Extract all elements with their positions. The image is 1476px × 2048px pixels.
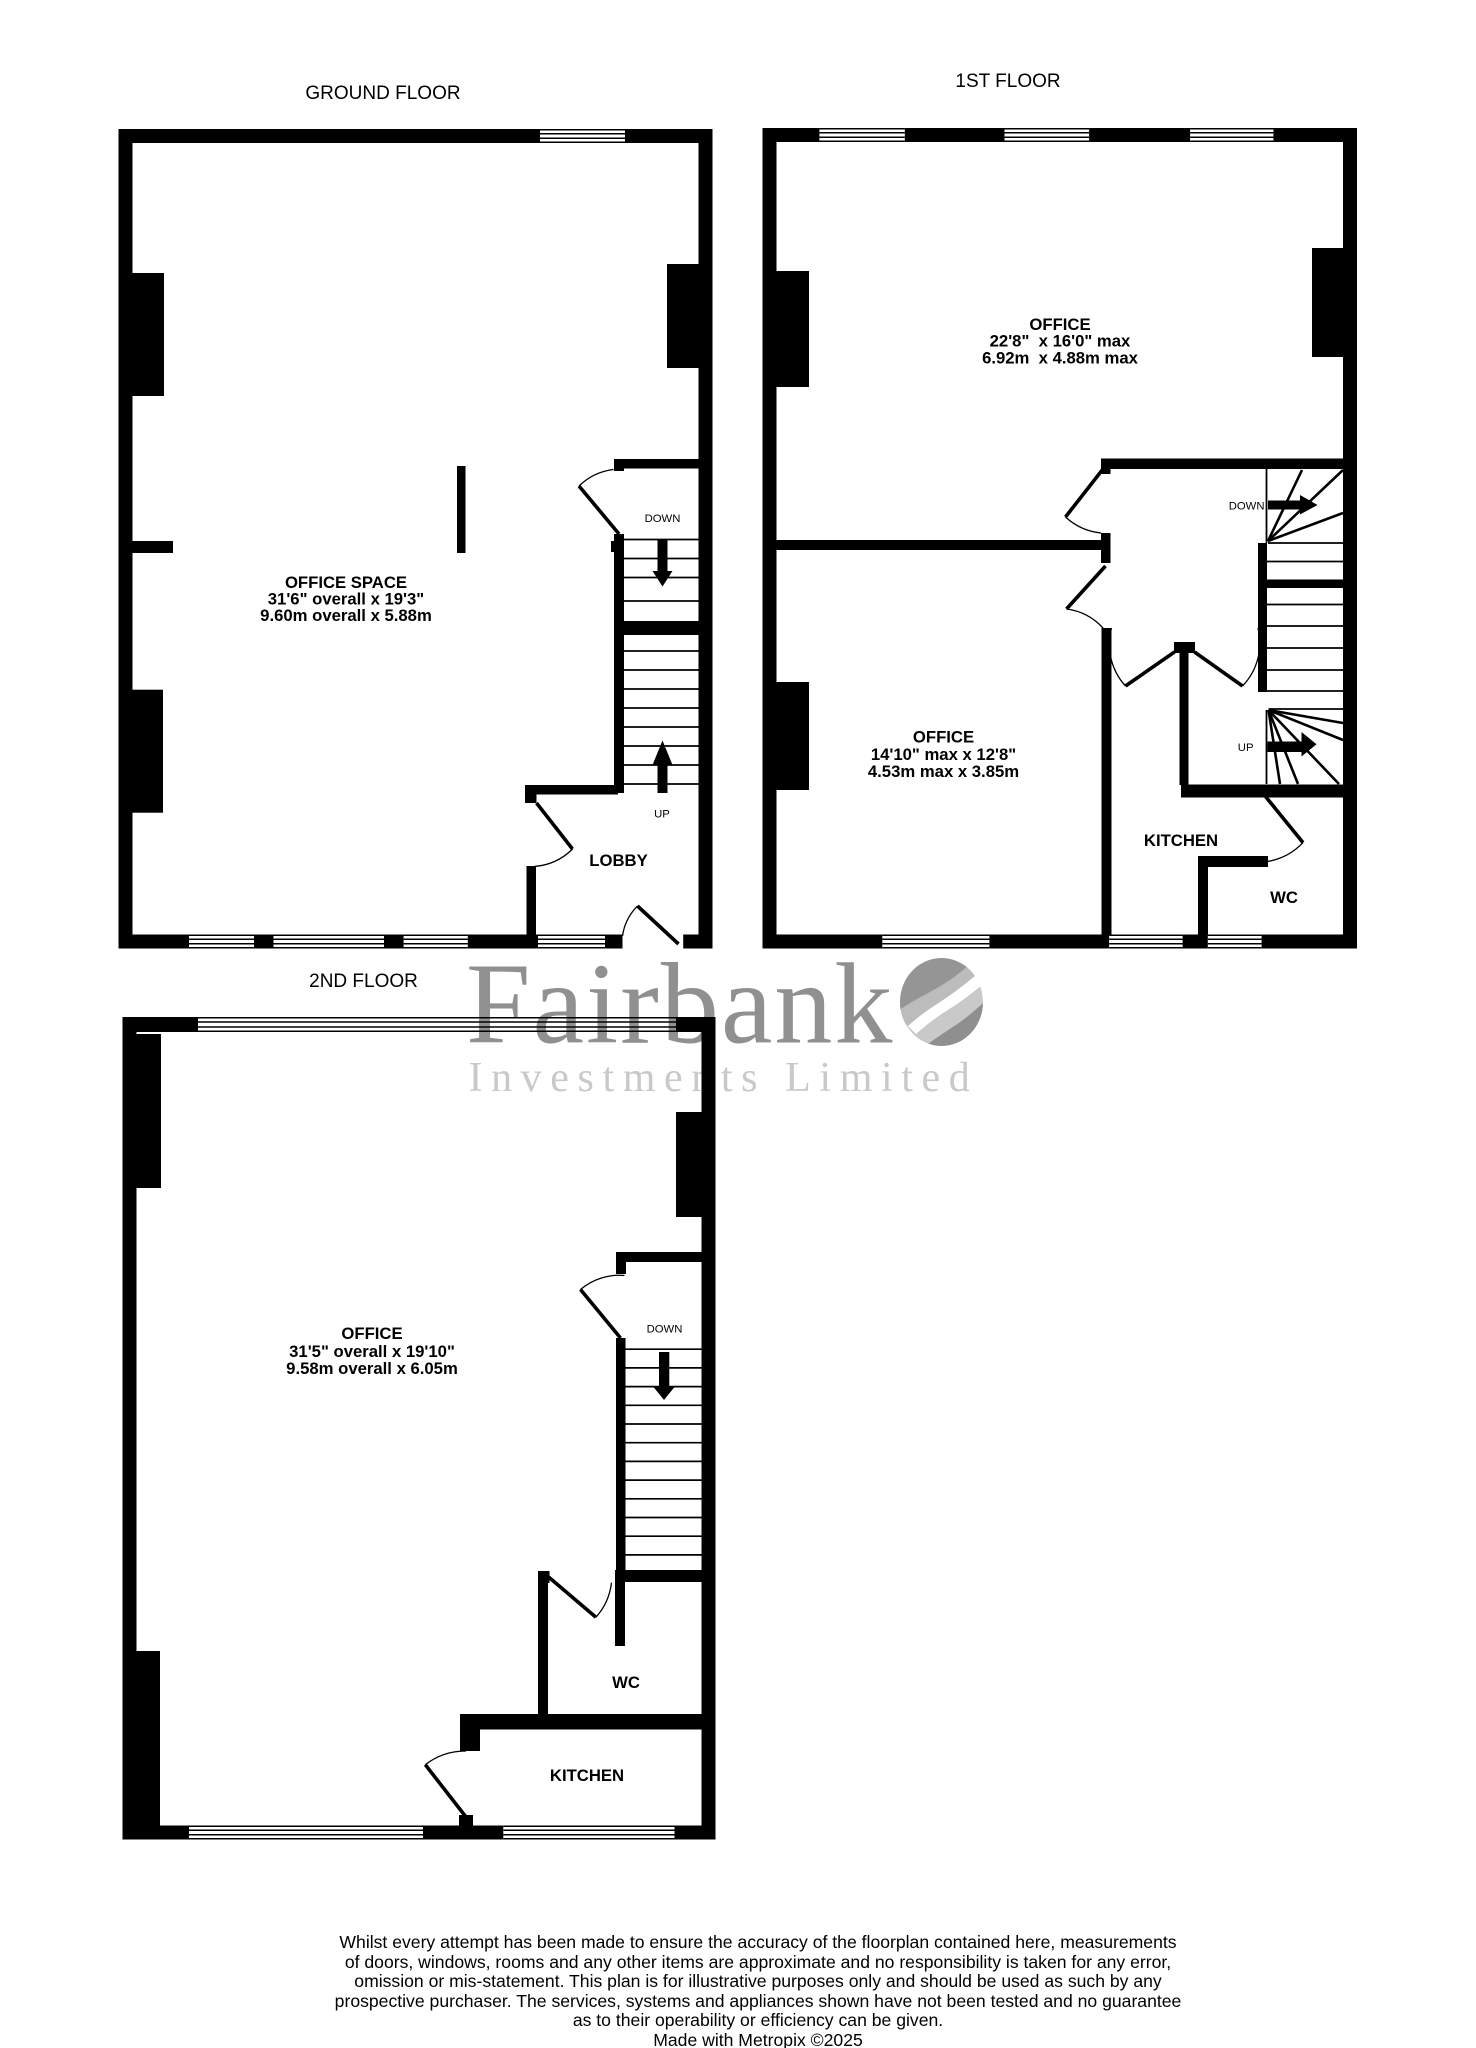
svg-text:LOBBY: LOBBY bbox=[589, 851, 647, 870]
svg-text:DOWN: DOWN bbox=[645, 513, 681, 525]
svg-text:9.58m overall x 6.05m: 9.58m overall x 6.05m bbox=[286, 1359, 458, 1378]
svg-text:KITCHEN: KITCHEN bbox=[1144, 831, 1218, 850]
svg-text:9.60m overall x 5.88m: 9.60m overall x 5.88m bbox=[260, 606, 432, 625]
svg-text:2ND FLOOR: 2ND FLOOR bbox=[309, 971, 418, 992]
svg-text:DOWN: DOWN bbox=[647, 1324, 683, 1336]
svg-text:1ST FLOOR: 1ST FLOOR bbox=[955, 71, 1060, 92]
svg-text:6.92m x 4.88m max: 6.92m x 4.88m max bbox=[982, 348, 1139, 367]
svg-text:WC: WC bbox=[612, 1673, 640, 1692]
svg-text:GROUND FLOOR: GROUND FLOOR bbox=[305, 83, 460, 104]
svg-text:4.53m max x 3.85m: 4.53m max x 3.85m bbox=[868, 762, 1019, 781]
svg-text:OFFICE: OFFICE bbox=[913, 728, 974, 747]
svg-text:UP: UP bbox=[654, 809, 670, 821]
svg-text:WC: WC bbox=[1270, 888, 1298, 907]
svg-text:DOWN: DOWN bbox=[1229, 501, 1265, 513]
svg-text:OFFICE: OFFICE bbox=[341, 1324, 402, 1343]
svg-text:KITCHEN: KITCHEN bbox=[550, 1766, 624, 1785]
svg-text:UP: UP bbox=[1238, 742, 1254, 754]
